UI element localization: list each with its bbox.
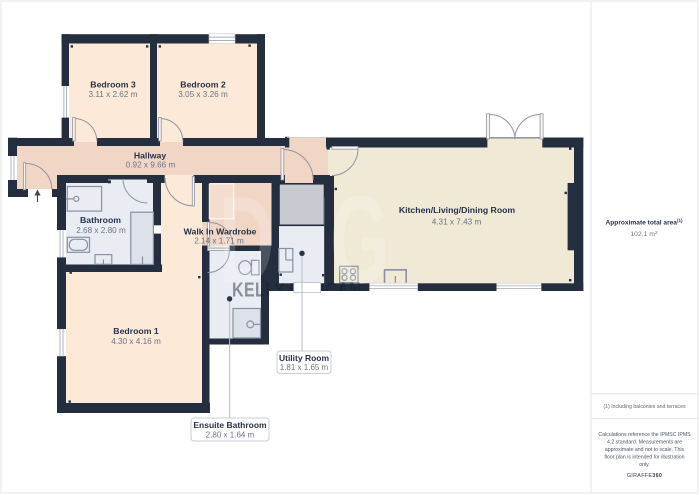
svg-text:Bedroom 2: Bedroom 2 (180, 79, 226, 89)
svg-text:0.92 x 9.66 m: 0.92 x 9.66 m (126, 161, 176, 170)
svg-text:(1) Including balconies and te: (1) Including balconies and terraces (603, 404, 686, 410)
svg-text:Kitchen/Living/Dining Room: Kitchen/Living/Dining Room (399, 205, 516, 215)
svg-text:floor plan is intended for ill: floor plan is intended for illustration (604, 455, 684, 461)
svg-text:2.14 x 1.71 m: 2.14 x 1.71 m (194, 236, 244, 245)
svg-text:Calculations reference the IPM: Calculations reference the IPMSC IPMS (598, 432, 691, 438)
svg-text:GIRAFFE360: GIRAFFE360 (627, 473, 662, 479)
svg-text:102.1 m2: 102.1 m2 (630, 230, 658, 238)
svg-text:2.80 x 1.64 m: 2.80 x 1.64 m (206, 431, 255, 440)
svg-text:approximate and not to scale.: approximate and not to scale. This (605, 447, 685, 453)
svg-text:Bathroom: Bathroom (80, 215, 121, 225)
svg-text:4.30 x 4.16 m: 4.30 x 4.16 m (111, 337, 161, 346)
svg-text:3.05 x 3.26 m: 3.05 x 3.26 m (178, 90, 228, 99)
svg-text:Walk In Wardrobe: Walk In Wardrobe (184, 226, 257, 236)
svg-text:4.2 standard. Measurements are: 4.2 standard. Measurements are (607, 440, 682, 446)
svg-text:Approximate total area(1): Approximate total area(1) (606, 218, 683, 227)
svg-text:2.68 x 2.80 m: 2.68 x 2.80 m (76, 226, 126, 235)
svg-text:1.81 x 1.65 m: 1.81 x 1.65 m (280, 363, 329, 372)
svg-text:only.: only. (639, 462, 650, 468)
svg-text:Hallway: Hallway (134, 150, 167, 160)
svg-text:Ensuite Bathroom: Ensuite Bathroom (193, 420, 267, 430)
svg-text:4.31 x 7.43 m: 4.31 x 7.43 m (432, 217, 482, 226)
svg-text:Bedroom 1: Bedroom 1 (113, 326, 159, 336)
svg-text:Bedroom 3: Bedroom 3 (90, 79, 136, 89)
svg-text:Utility Room: Utility Room (279, 353, 329, 363)
svg-text:3.11 x 2.62 m: 3.11 x 2.62 m (88, 90, 137, 99)
